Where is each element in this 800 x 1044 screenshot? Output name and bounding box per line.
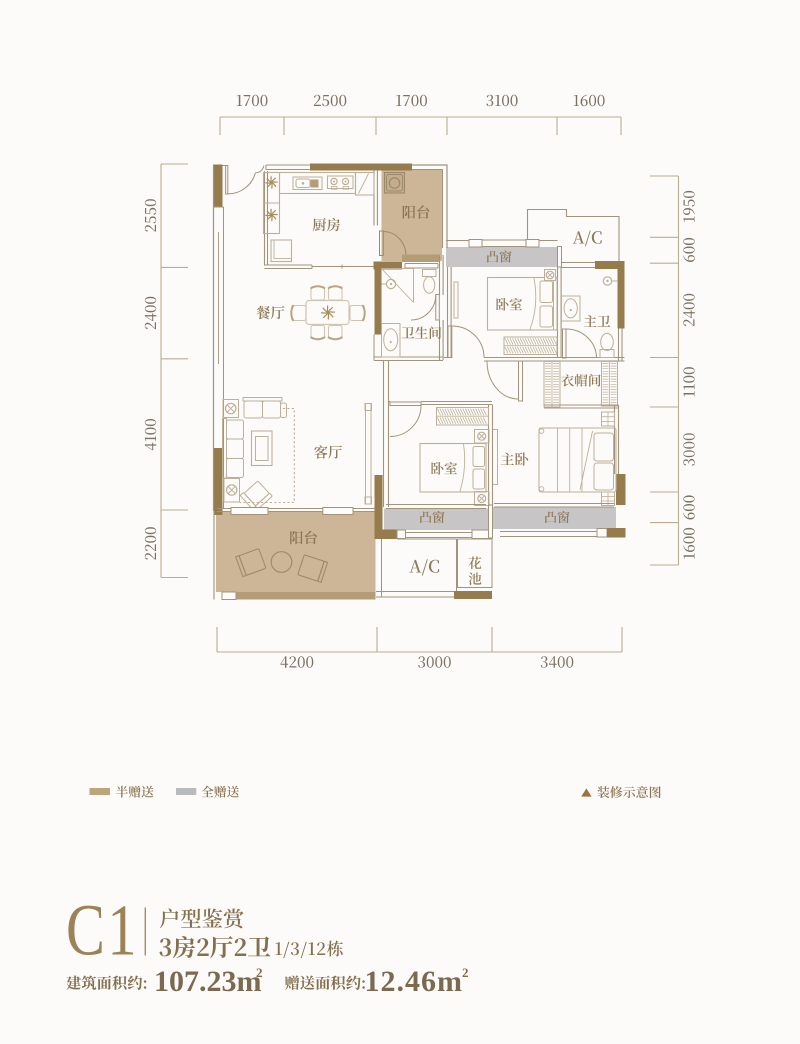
svg-text:12.46m: 12.46m bbox=[365, 965, 464, 998]
svg-text:2: 2 bbox=[256, 965, 263, 980]
svg-text:107.23m: 107.23m bbox=[154, 965, 262, 998]
svg-text:2: 2 bbox=[462, 965, 469, 980]
svg-text:C1: C1 bbox=[66, 890, 139, 971]
